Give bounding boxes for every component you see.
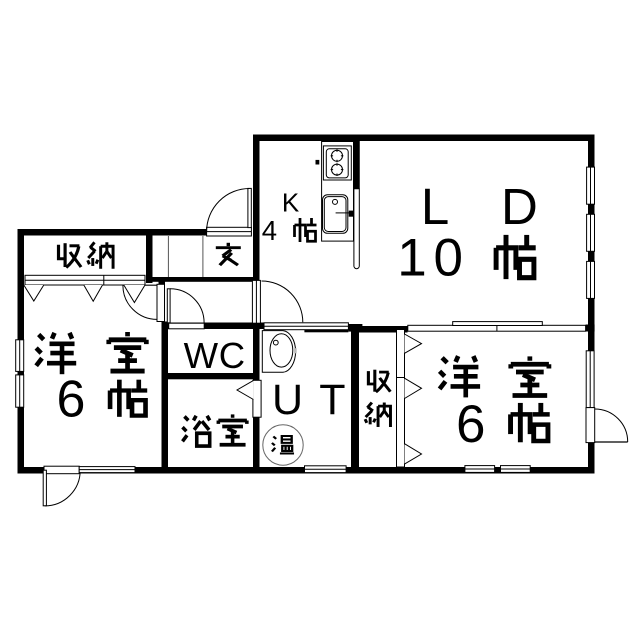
svg-text:D: D <box>501 178 538 235</box>
svg-text:6: 6 <box>456 395 485 454</box>
svg-text:0: 0 <box>433 229 462 288</box>
svg-text:6: 6 <box>57 370 86 428</box>
svg-text:L: L <box>421 178 449 235</box>
svg-text:W: W <box>184 335 219 376</box>
svg-text:U: U <box>272 376 303 424</box>
svg-text:4: 4 <box>262 215 277 246</box>
svg-text:C: C <box>219 335 245 376</box>
svg-text:T: T <box>319 376 345 424</box>
svg-text:K: K <box>282 188 300 218</box>
svg-text:1: 1 <box>397 229 426 288</box>
